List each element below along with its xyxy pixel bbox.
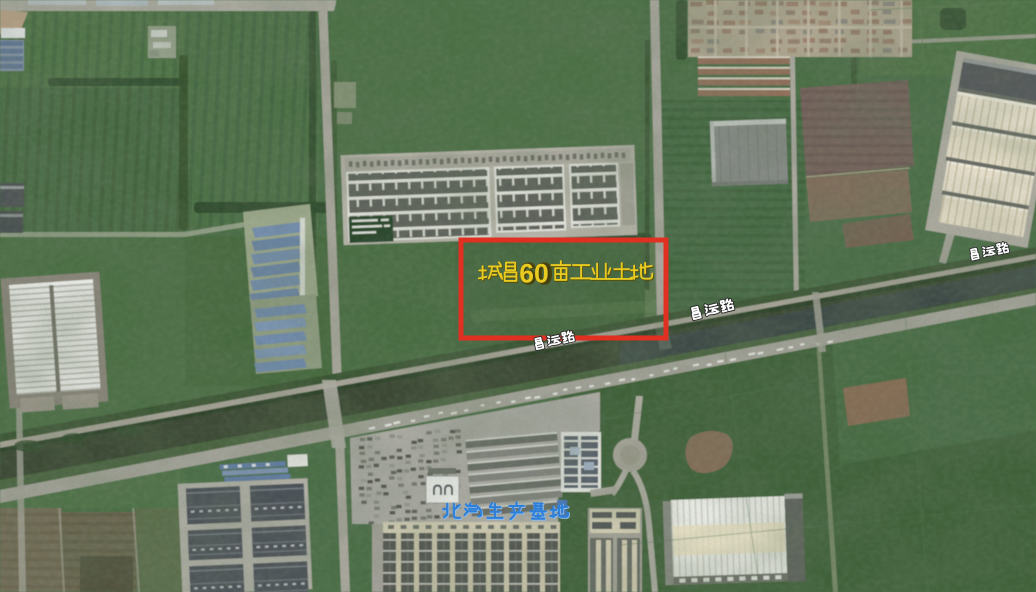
svg-text:60: 60 — [519, 259, 548, 289]
